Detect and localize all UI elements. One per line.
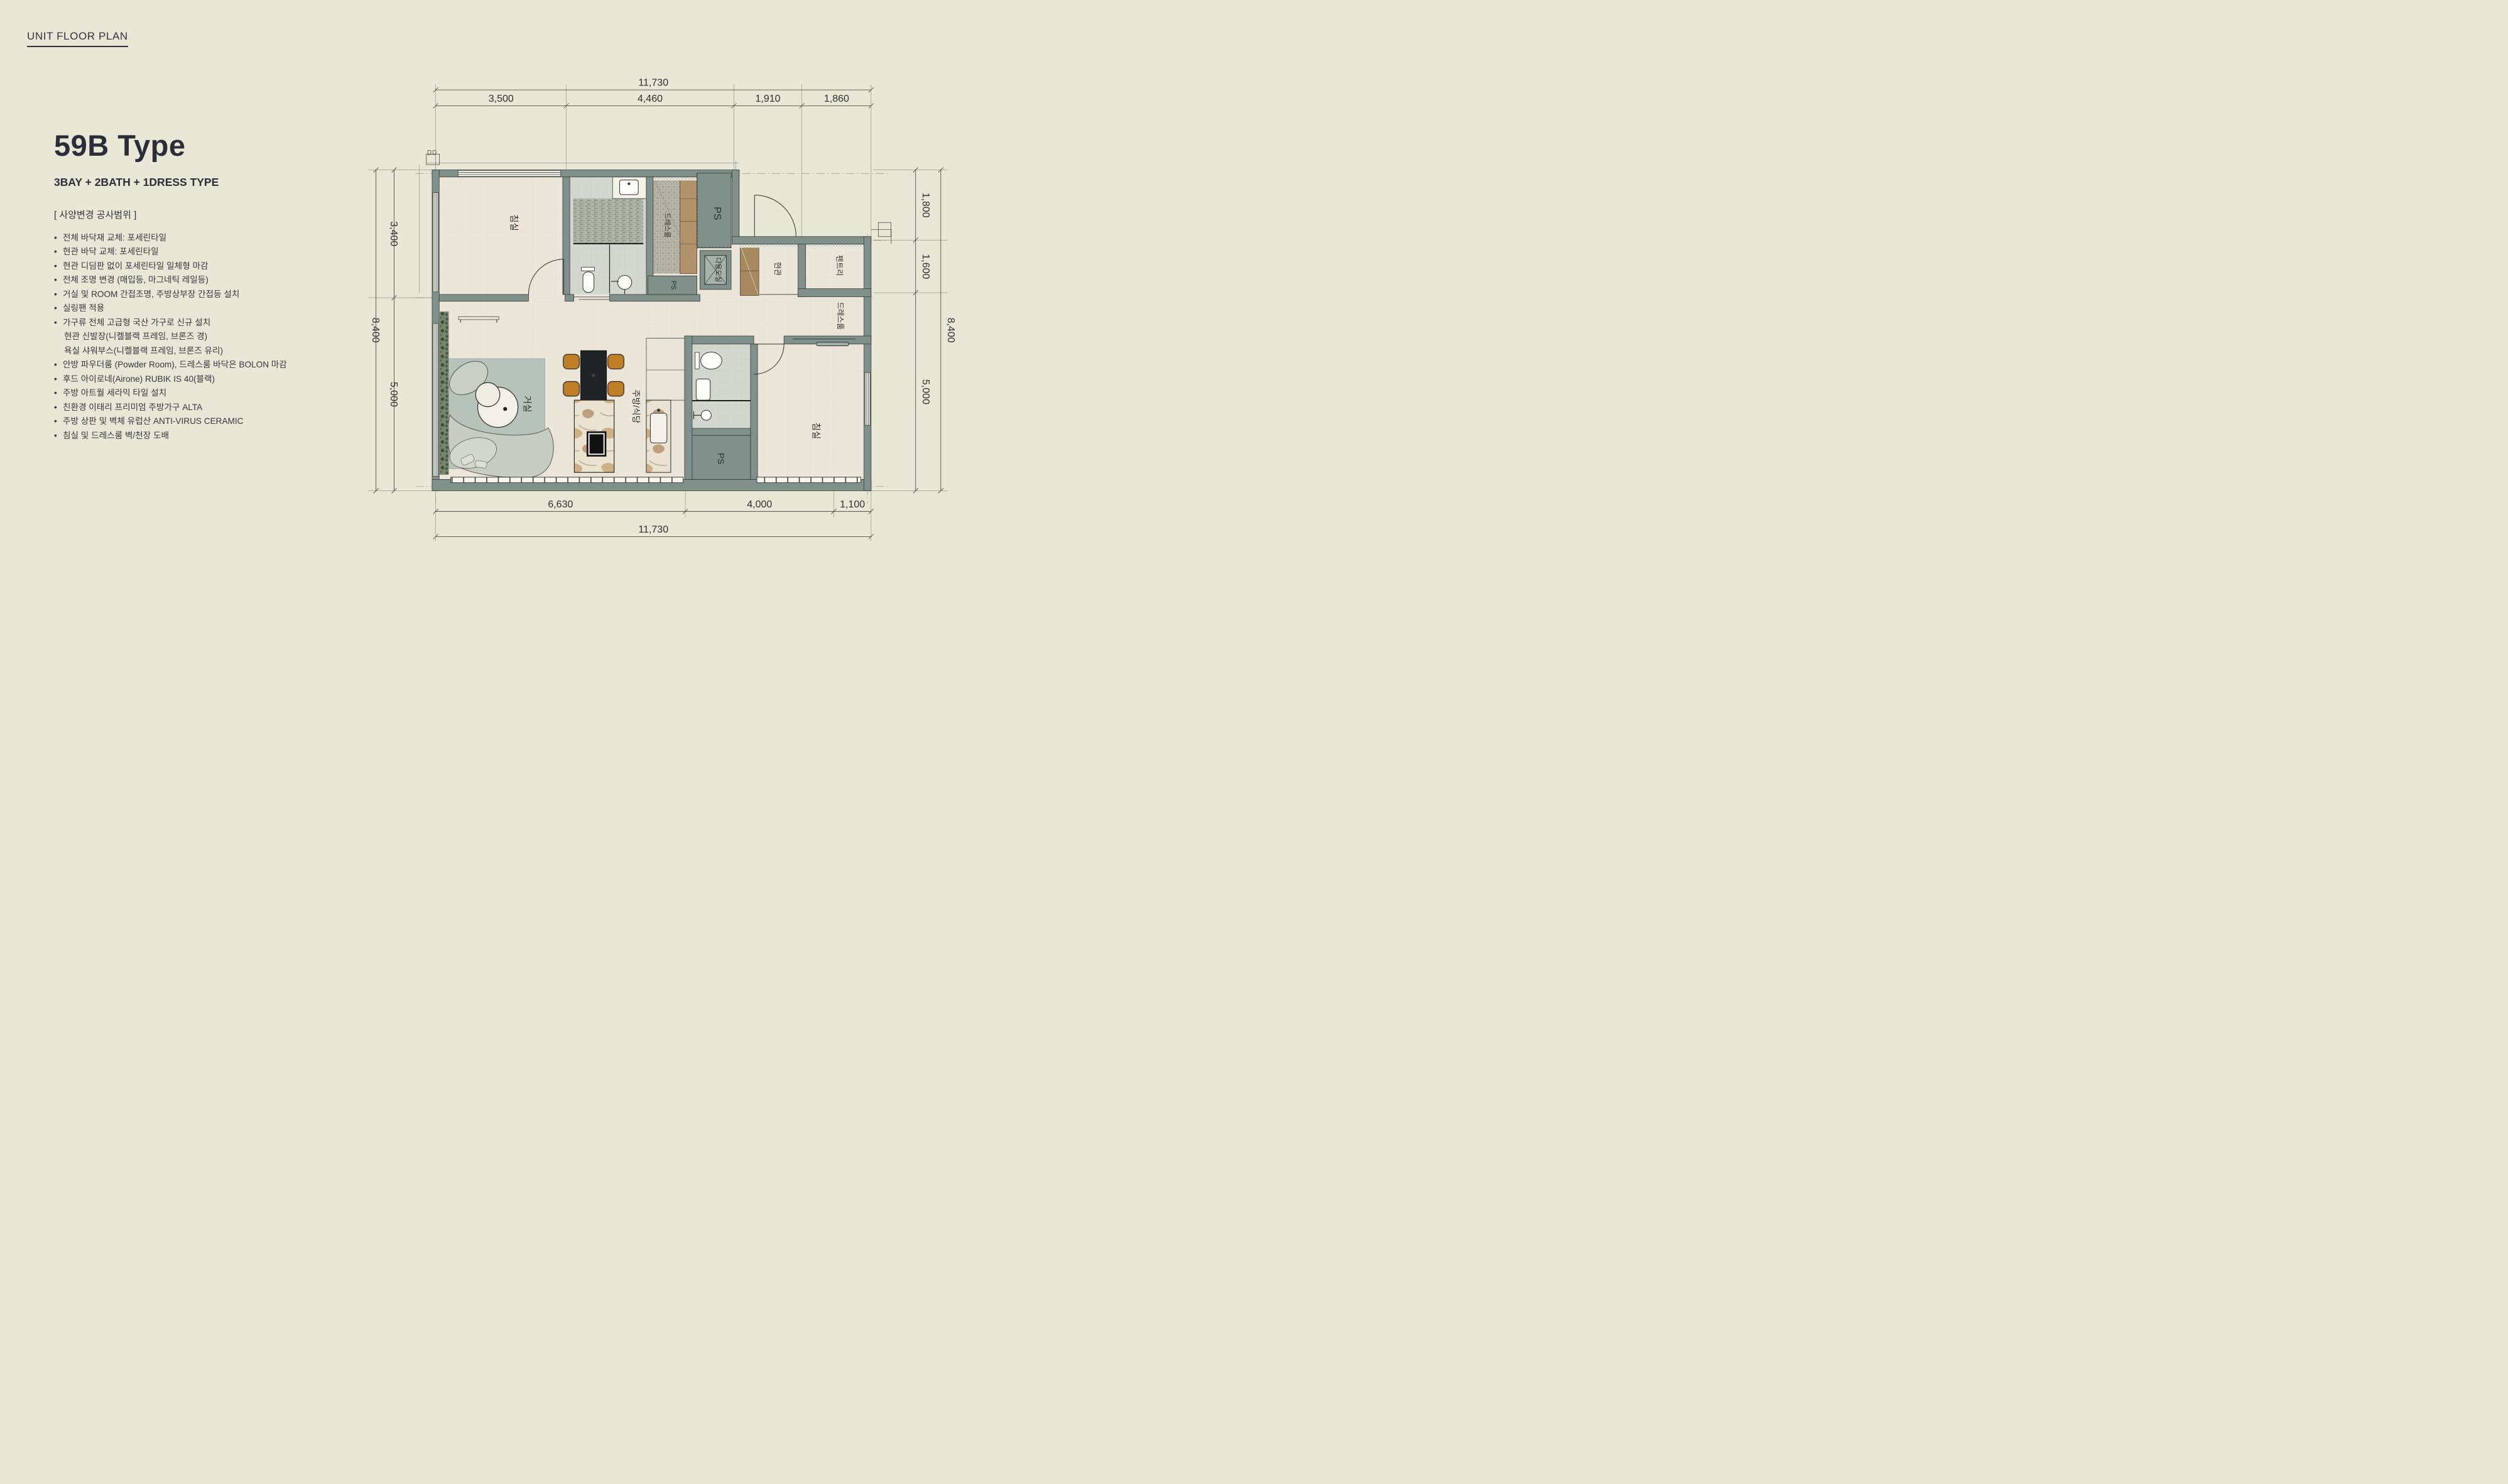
dim-top-total: 11,730 [638, 77, 668, 88]
label-dress-1: 드레스룸 [663, 213, 671, 238]
bath2-sink [696, 379, 710, 401]
label-utility: 다용도실 [714, 257, 722, 283]
label-kitchen: 주방/식당 [631, 389, 641, 423]
balcony-foliage [440, 311, 448, 475]
bath1-shower-mosaic [573, 198, 643, 244]
dim-left-1: 3,400 [388, 221, 399, 246]
dim-right-3: 5,000 [920, 379, 931, 404]
label-ps-mid: PS [670, 281, 677, 290]
dining-chair [608, 382, 624, 396]
dim-right-2: 1,600 [920, 254, 931, 279]
slide: UNIT FLOOR PLAN 59B Type 3BAY + 2BATH + … [0, 0, 1005, 595]
dim-top-4: 1,860 [824, 93, 849, 104]
bath2-shower-head [701, 410, 711, 420]
label-living: 거실 [521, 396, 532, 413]
label-bedroom-2: 침실 [810, 423, 821, 440]
cooktop [587, 431, 605, 456]
bath2-toilet [701, 352, 722, 369]
label-bedroom-1: 침실 [508, 214, 519, 231]
dim-left-total: 8,400 [370, 318, 381, 343]
label-dress-2: 드레스룸 [836, 302, 845, 330]
label-pantry: 펜트리 [835, 255, 844, 276]
bath1-pedestal-basin [617, 275, 631, 289]
dim-bottom-3: 1,100 [840, 499, 865, 510]
console [459, 317, 499, 320]
bath2-toilet-tank [695, 352, 699, 369]
bath1-toilet-tank [582, 268, 595, 271]
dim-bottom-total: 11,730 [638, 524, 668, 535]
dim-right-1: 1,800 [920, 193, 931, 218]
bath1-toilet [583, 272, 594, 293]
dining-chair [563, 354, 580, 369]
dress1-wardrobe [680, 177, 697, 274]
dim-top-3: 1,910 [755, 93, 780, 104]
kitchen-cabinets [646, 339, 685, 401]
dining-chair [563, 382, 580, 396]
coffee-table-small [475, 382, 499, 406]
dim-bottom-1: 6,630 [548, 499, 573, 510]
label-ps-bottom: PS [716, 453, 725, 464]
kitchen-sink [650, 413, 666, 443]
dim-right-total: 8,400 [945, 318, 957, 343]
label-entrance: 현관 [773, 262, 782, 276]
dining-chair [608, 354, 624, 369]
dim-left-2: 5,000 [388, 382, 399, 407]
dim-top-1: 3,500 [489, 93, 514, 104]
dim-bottom-2: 4,000 [747, 499, 772, 510]
label-ps-top: PS [712, 207, 723, 220]
bath1-basin [620, 180, 639, 195]
dim-top-2: 4,460 [638, 93, 663, 104]
floor-plan: 침실 드레스룸 PS 다용도실 PS 현관 펜트리 드레스룸 거실 주방/식당 … [0, 0, 1005, 595]
